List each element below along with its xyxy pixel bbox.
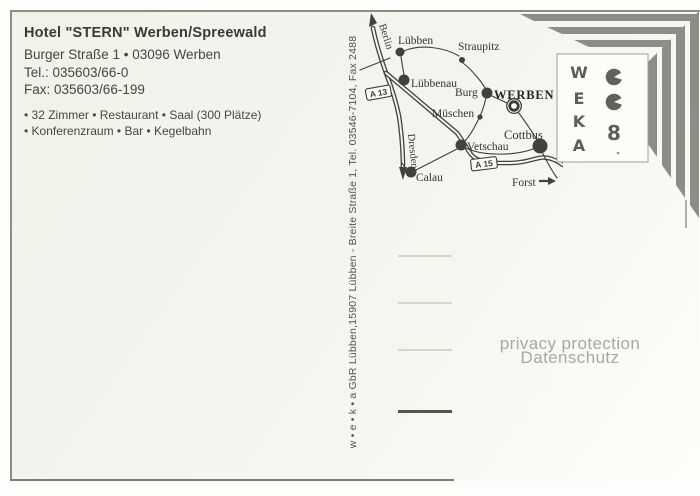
hotel-address: Burger Straße 1 • 03096 Werben: [24, 46, 267, 64]
weka-logo-eight-glyph: 8: [607, 121, 621, 145]
map-label-burg: Burg: [455, 87, 478, 99]
hotel-feature-line: • 32 Zimmer • Restaurant • Saal (300 Plä…: [24, 107, 267, 124]
corner-stripe-v: [676, 25, 685, 198]
weka-logo-letter-k: K: [573, 112, 586, 131]
postcard-back: Hotel "STERN" Werben/Spreewald Burger St…: [0, 0, 700, 496]
hotel-title: Hotel "STERN" Werben/Spreewald: [24, 25, 267, 41]
town-dot-burg: [482, 88, 493, 99]
road-luebben-straupitz: [404, 47, 459, 56]
card-border-left: [10, 11, 12, 481]
card-border-bottom: [10, 479, 454, 481]
road-luebben-luebbenau: [401, 56, 404, 75]
hotel-phone: Tel.: 035603/66-0: [24, 64, 267, 82]
weka-logo-letter-a: A: [573, 136, 586, 155]
map-label-mueschen: Müschen: [432, 108, 474, 120]
address-line: [398, 349, 452, 351]
corner-stripe-v: [690, 11, 699, 218]
road-straupitz-burg: [463, 63, 485, 88]
hotel-feature-line: • Konferenzraum • Bar • Kegelbahn: [24, 123, 267, 140]
corner-stripe-h: [520, 14, 697, 21]
address-line-bold: [398, 410, 452, 413]
town-dot-straupitz: [459, 57, 465, 63]
town-dot-luebben: [396, 48, 405, 57]
map-label-dresden: Dresden: [405, 133, 420, 170]
a13-sign: A 13: [365, 85, 392, 101]
hotel-info-block: Hotel "STERN" Werben/Spreewald Burger St…: [24, 25, 267, 140]
corner-stripe-h: [574, 40, 670, 47]
corner-decoration: W E K A 8: [500, 0, 700, 235]
town-dot-vetschau: [456, 140, 467, 151]
road-burg-vetschau: [464, 98, 486, 142]
weka-logo-letter-e: E: [574, 89, 585, 108]
weka-logo-tiny-dot: [617, 152, 620, 155]
address-line: [398, 302, 452, 304]
road-vetschau-calau: [416, 149, 457, 170]
corner-stripe-h: [547, 27, 683, 34]
hotel-fax: Fax: 035603/66-199: [24, 81, 267, 99]
a15-sign: A 15: [470, 156, 497, 171]
corner-stripe-v: [662, 39, 671, 178]
map-label-straupitz: Straupitz: [458, 41, 500, 53]
town-dot-mueschen: [477, 114, 482, 119]
map-label-luebbenau: Lübbenau: [411, 78, 457, 90]
address-line: [398, 255, 452, 257]
map-label-luebben: Lübben: [398, 35, 433, 47]
map-label-calau: Calau: [416, 172, 443, 184]
corner-stripe-v: [648, 53, 657, 157]
privacy-watermark-line2: Datenschutz: [462, 351, 678, 365]
town-dot-luebbenau: [399, 75, 410, 86]
privacy-watermark: privacy protection Datenschutz: [462, 337, 678, 364]
weka-logo-letter-w: W: [570, 63, 588, 82]
berlin-arrow: [369, 13, 377, 27]
